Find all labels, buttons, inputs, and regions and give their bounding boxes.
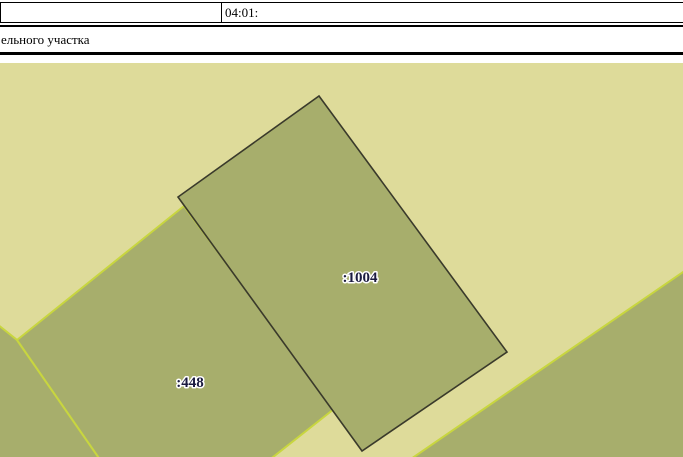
table-bottom-border-thick <box>0 25 683 27</box>
section-title-fragment: ельного участка <box>1 32 90 47</box>
parcel-label-448: :448 <box>176 375 204 391</box>
cadastral-number-cell: 04:01: <box>225 5 258 20</box>
section-divider-rule <box>0 52 683 55</box>
table-bottom-border-thin <box>0 22 683 23</box>
cadastral-map: :1004 :448 <box>0 63 683 457</box>
table-cell-divider <box>221 2 222 22</box>
table-left-border <box>0 2 1 22</box>
table-top-border <box>0 2 683 3</box>
parcel-label-1004: :1004 <box>343 270 378 286</box>
